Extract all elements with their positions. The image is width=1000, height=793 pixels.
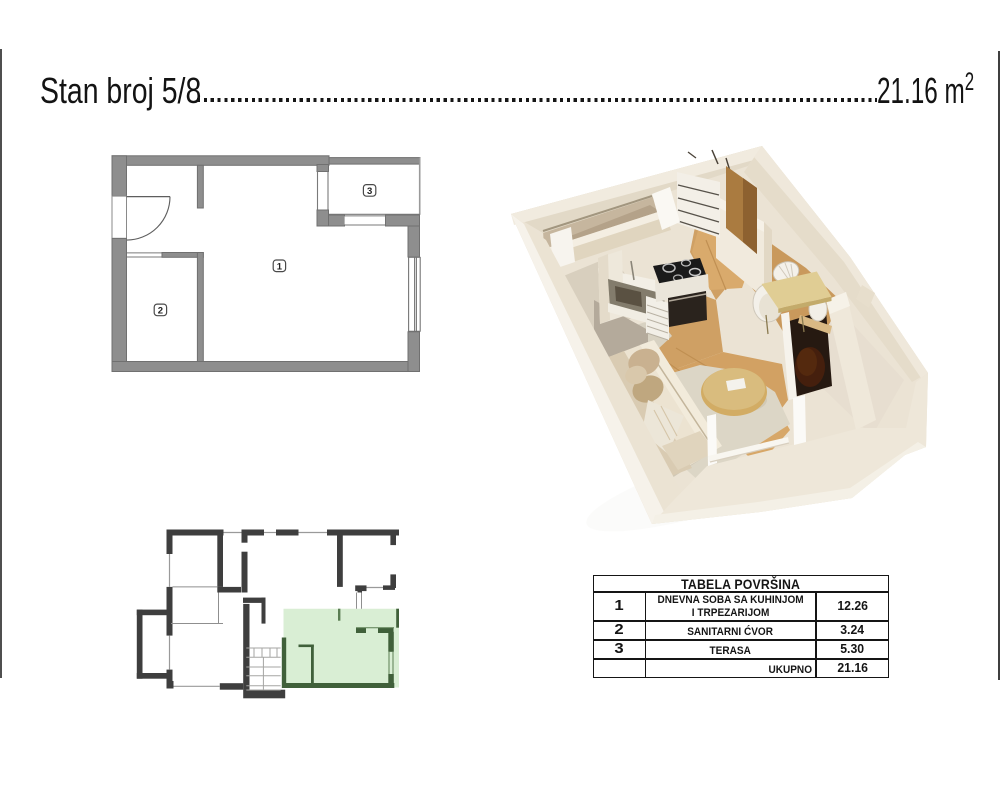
svg-text:1: 1 (277, 261, 283, 272)
svg-text:2: 2 (158, 306, 163, 317)
svg-text:3: 3 (367, 186, 372, 197)
